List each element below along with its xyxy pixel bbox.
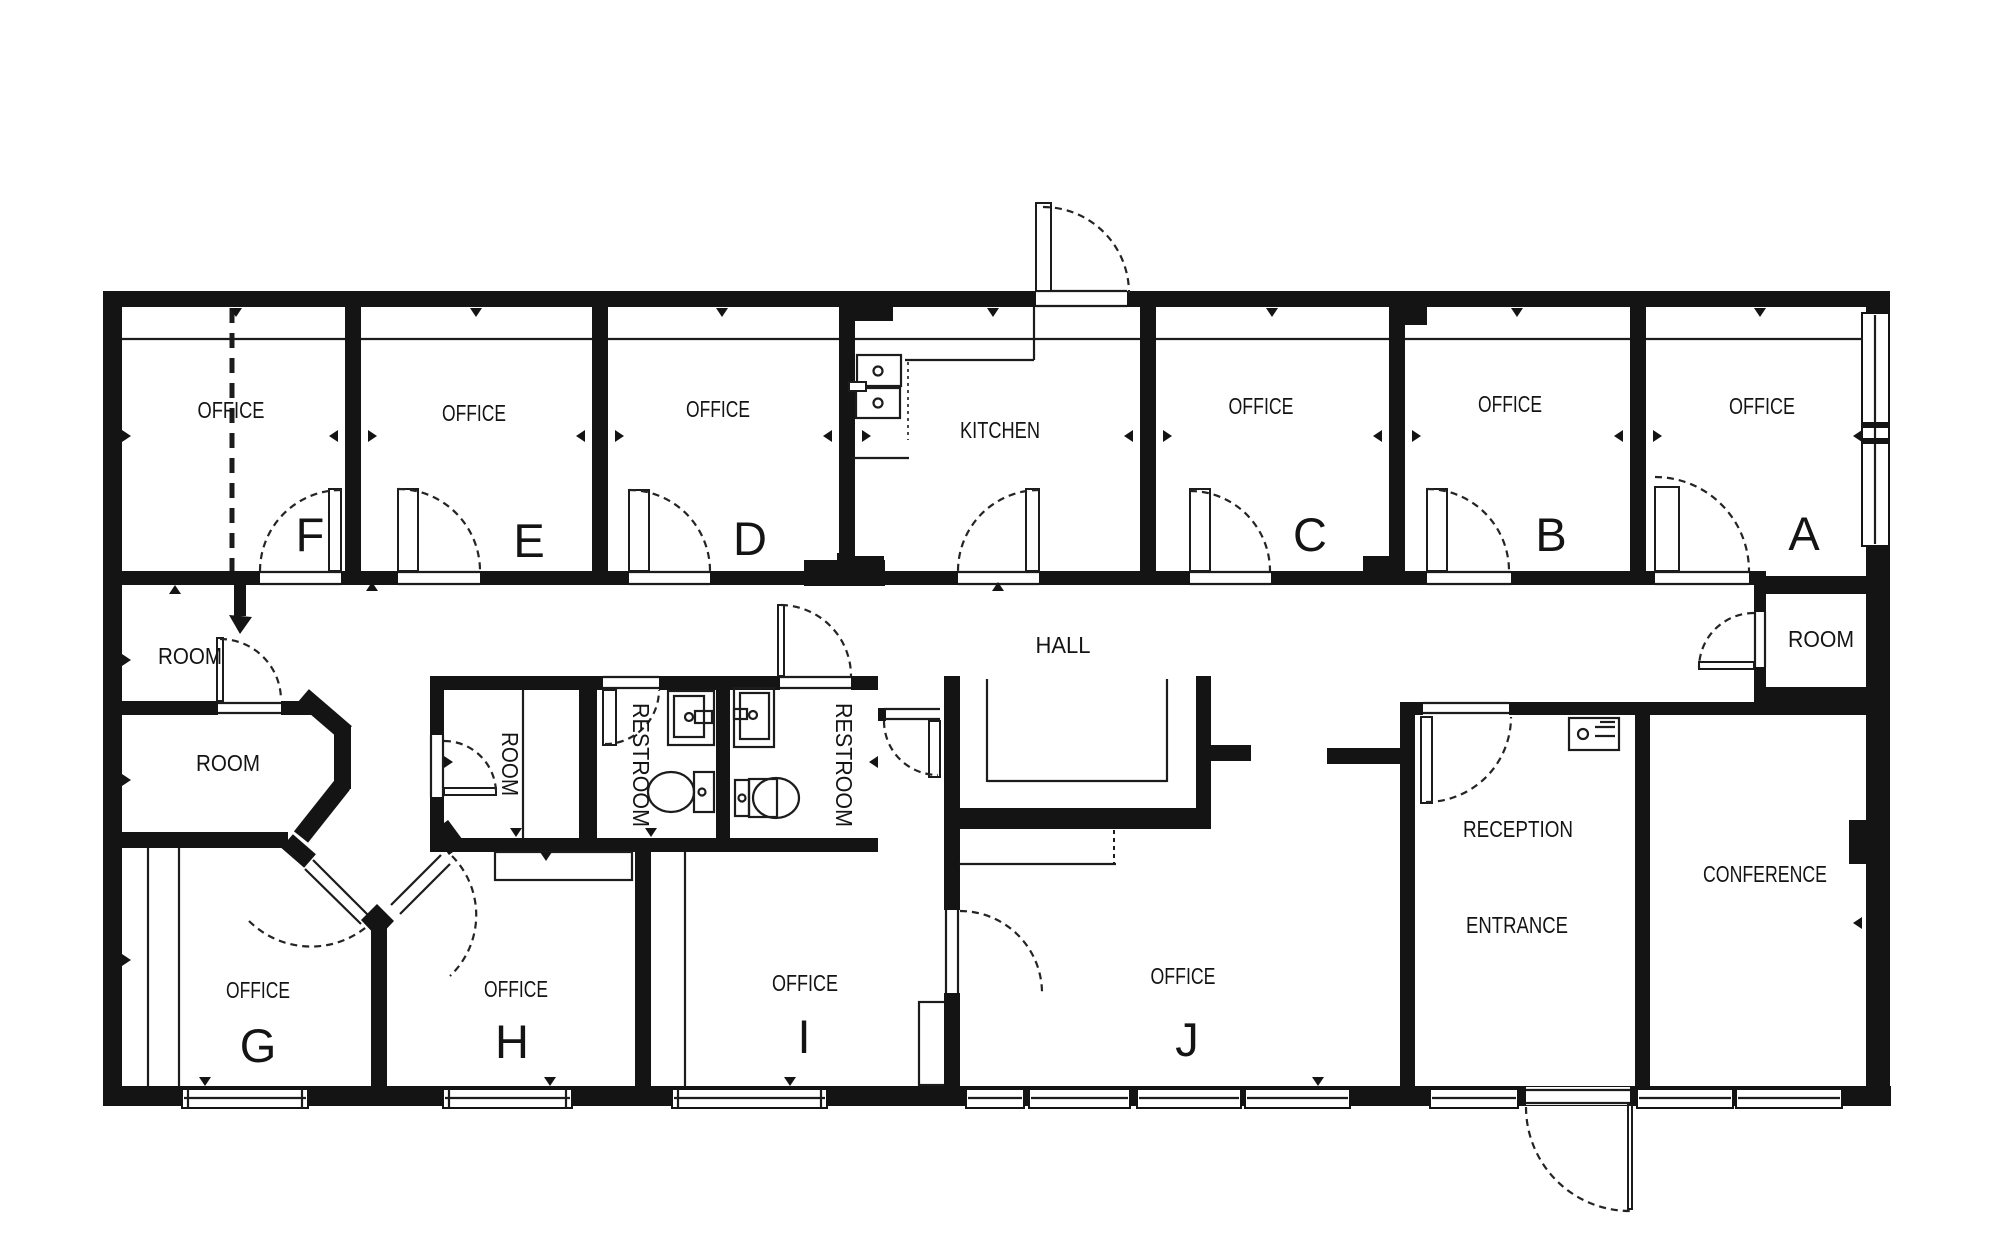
svg-text:A: A [1788,507,1820,560]
svg-text:HALL: HALL [1036,632,1091,658]
svg-text:D: D [733,512,767,565]
svg-text:OFFICE: OFFICE [226,977,290,1003]
svg-text:CONFERENCE: CONFERENCE [1703,861,1827,887]
svg-text:OFFICE: OFFICE [1151,963,1216,989]
svg-text:OFFICE: OFFICE [198,397,265,423]
svg-text:ROOM: ROOM [497,732,523,796]
svg-text:OFFICE: OFFICE [686,396,750,422]
svg-text:B: B [1535,508,1566,561]
svg-text:G: G [240,1019,277,1072]
svg-text:ENTRANCE: ENTRANCE [1466,912,1568,938]
svg-text:OFFICE: OFFICE [484,976,548,1002]
svg-text:J: J [1175,1013,1199,1066]
svg-text:E: E [513,514,544,567]
svg-text:RESTROOM: RESTROOM [831,703,857,827]
svg-text:OFFICE: OFFICE [1729,393,1795,419]
svg-text:H: H [495,1015,529,1068]
svg-text:RECEPTION: RECEPTION [1463,816,1573,842]
svg-text:RESTROOM: RESTROOM [628,703,654,827]
svg-text:ROOM: ROOM [196,750,260,776]
svg-text:F: F [296,508,325,561]
svg-text:I: I [797,1010,810,1063]
svg-text:OFFICE: OFFICE [442,400,506,426]
svg-text:KITCHEN: KITCHEN [960,417,1040,443]
svg-text:C: C [1293,508,1327,561]
svg-text:OFFICE: OFFICE [1229,393,1294,419]
svg-text:ROOM: ROOM [158,643,222,669]
svg-text:ROOM: ROOM [1788,626,1854,652]
svg-text:OFFICE: OFFICE [772,970,838,996]
svg-text:OFFICE: OFFICE [1478,391,1542,417]
